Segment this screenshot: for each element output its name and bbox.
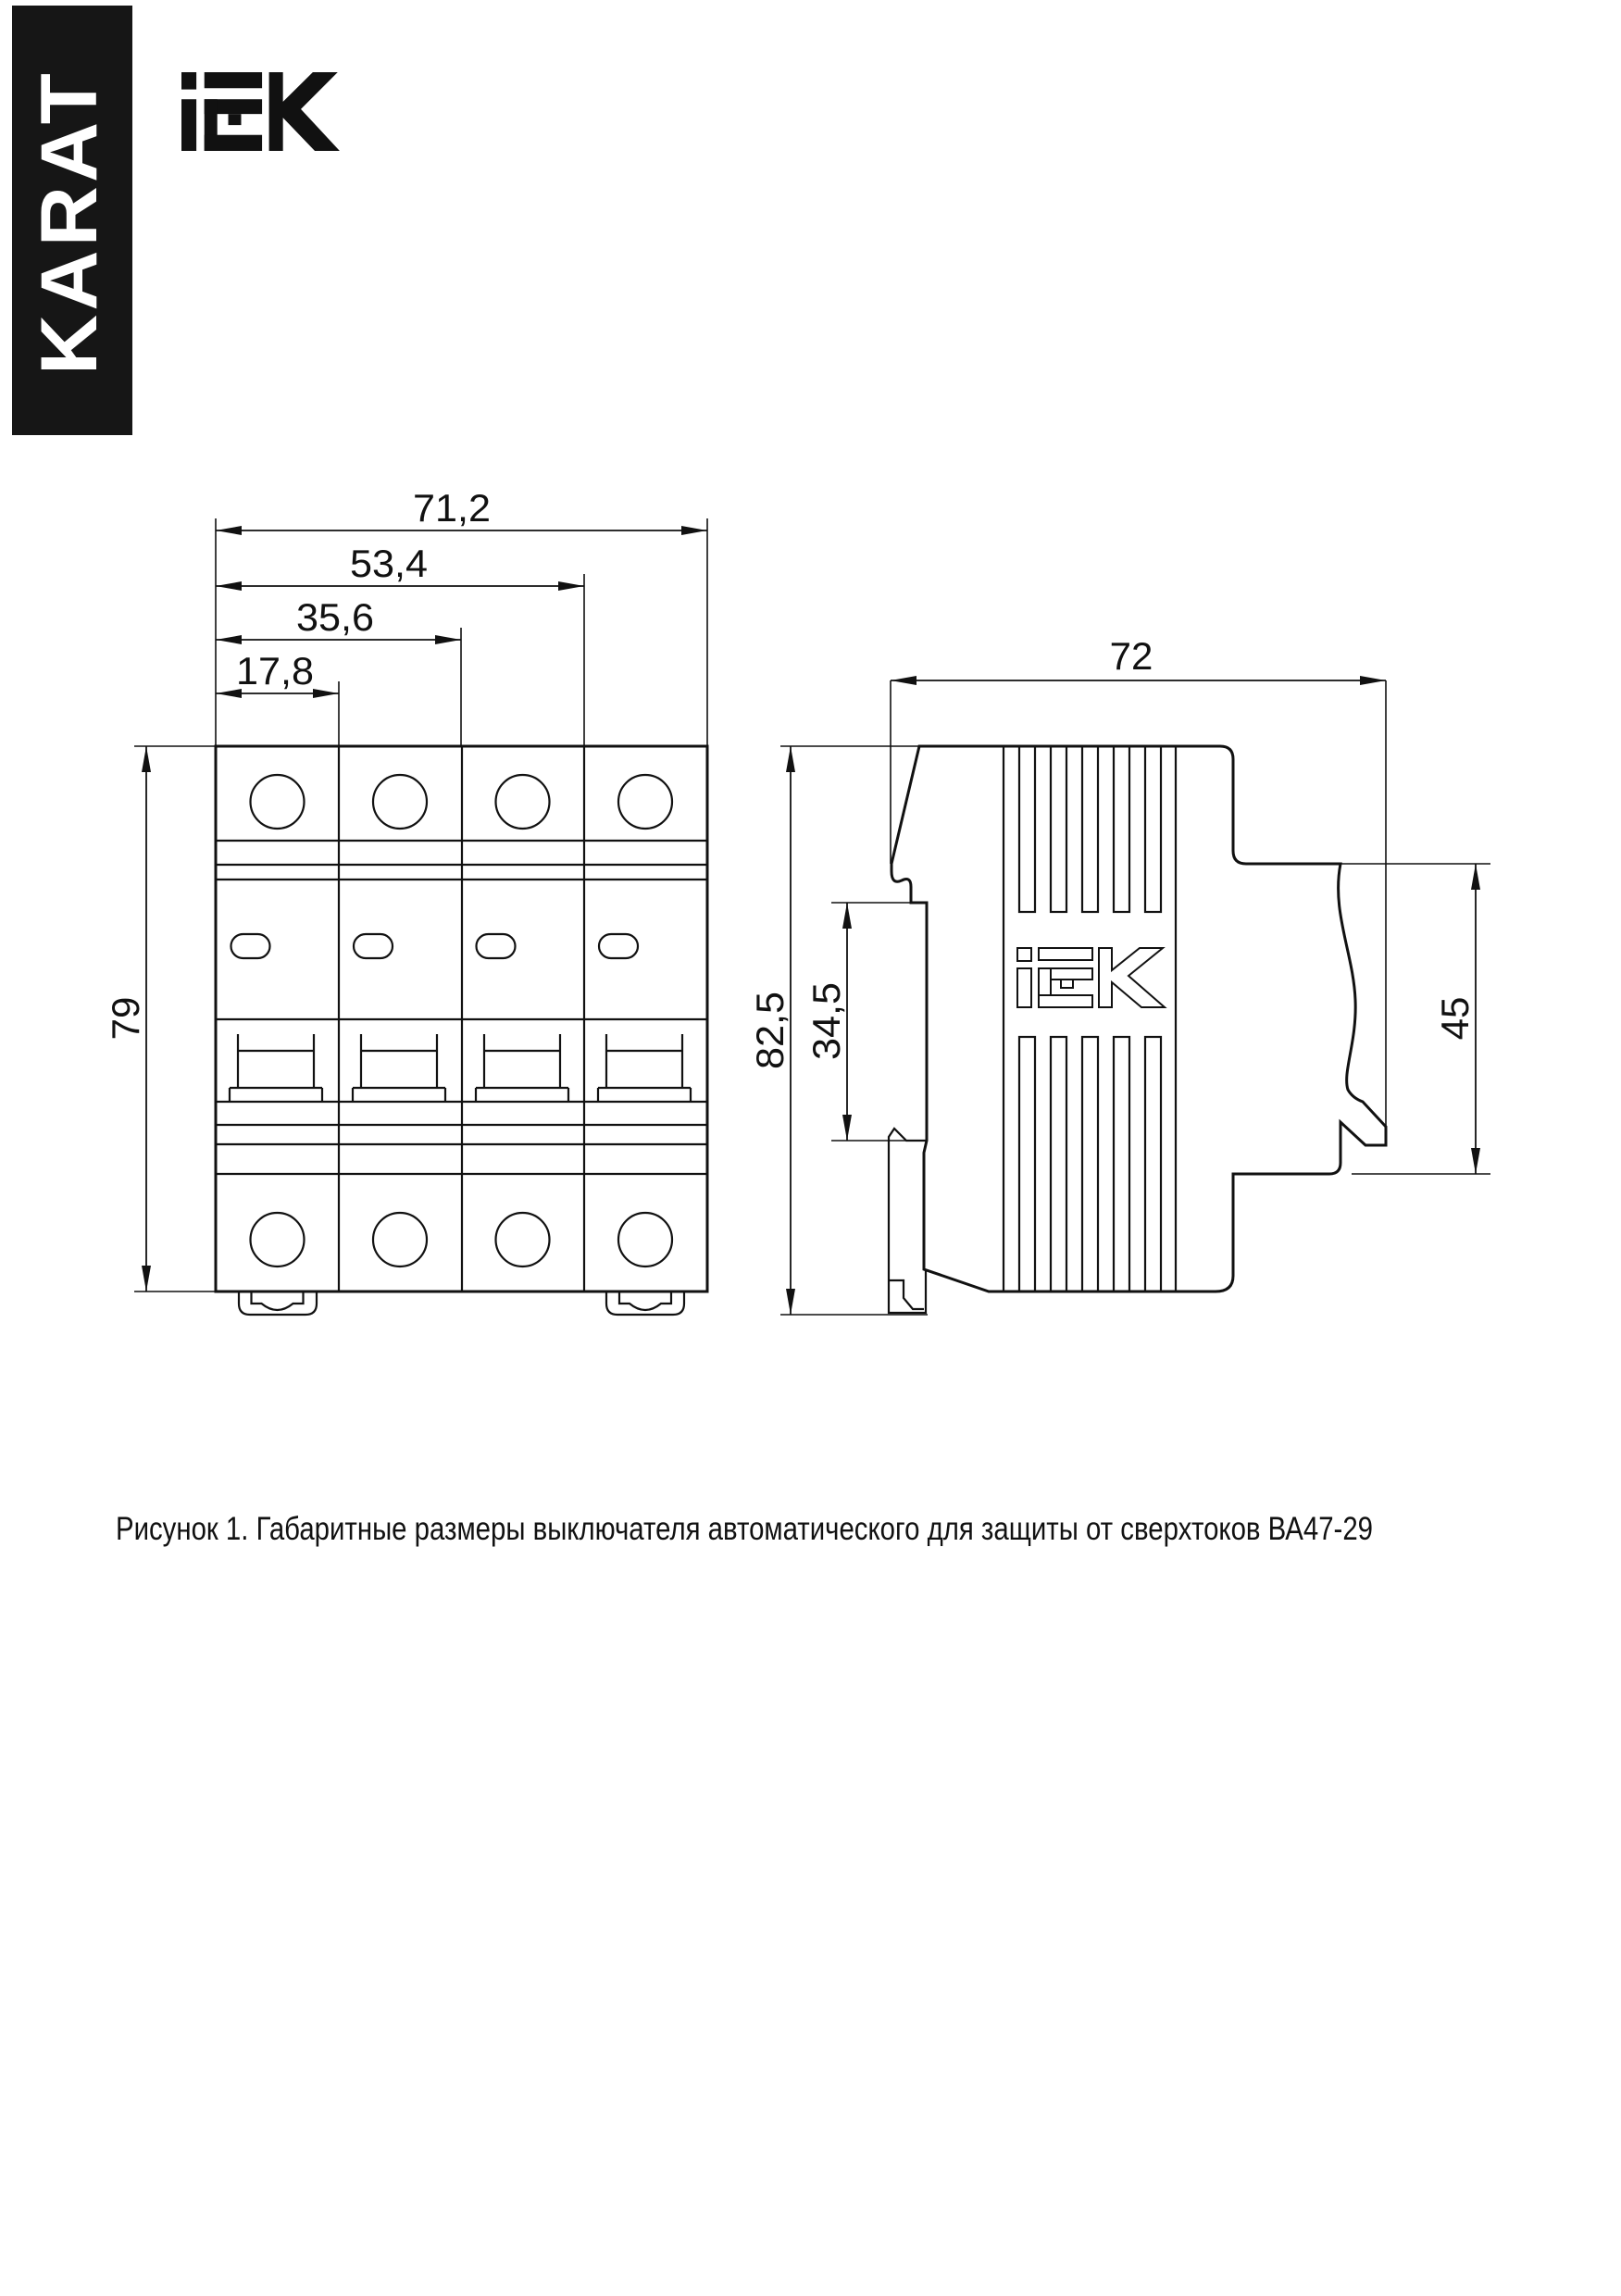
iek-logo-i-dot [1017,948,1031,961]
front-din-clips [239,1291,684,1315]
terminal-screw [496,775,550,829]
marking-window [599,934,638,958]
iek-logo-e-top [205,72,262,88]
terminal-screw [496,1213,550,1267]
front-toggle-handles [230,1034,691,1102]
vent-slot [1019,1037,1035,1291]
side-din-latch [889,1129,927,1313]
vent-slot [1114,1037,1129,1291]
karat-banner: KARAT [12,6,132,435]
front-dimension-arrows [142,526,707,1291]
iek-logo-k [269,72,340,151]
dim-label-width-3pole: 53,4 [350,542,428,585]
side-panel-edges [1004,746,1176,1291]
dim-label-front-panel: 45 [1433,997,1477,1041]
dim-label-depth: 72 [1110,634,1153,678]
din-clip-detail [252,1291,304,1310]
vent-slot [1145,746,1161,912]
dim-label-front-height: 79 [104,997,147,1041]
iek-logo-k [1099,948,1165,1007]
terminal-screw [618,1213,672,1267]
toggle-handle [476,1034,568,1102]
terminal-screw [373,775,427,829]
side-lower-vent-slots [1019,1037,1161,1291]
side-body-outline [892,746,1386,1291]
karat-banner-label: KARAT [25,69,114,375]
iek-logo-e-tab [1061,980,1073,988]
marking-window [354,934,393,958]
figure-caption: Рисунок 1. Габаритные размеры выключател… [116,1511,1373,1547]
dim-label-width-2pole: 35,6 [296,595,374,639]
toggle-handle [353,1034,445,1102]
side-view [889,746,1386,1313]
iek-logo-e-top [1039,948,1092,960]
iek-logo-e-tab [229,114,242,125]
dim-label-width-total: 71,2 [413,486,491,530]
dim-label-din-slot: 34,5 [804,982,848,1060]
vent-slot [1051,1037,1066,1291]
iek-logo-e-bottom [1039,995,1092,1007]
technical-drawing: KARAT [0,0,1621,2296]
dim-label-width-1pole: 17,8 [236,649,314,693]
marking-window [231,934,270,958]
document-page: KARAT [0,0,1621,2296]
iek-logo-i-bar [181,99,196,151]
iek-logo [181,72,340,151]
front-view-dimensions: 71,2 53,4 35,6 17,8 79 [104,486,707,1291]
vent-slot [1082,746,1098,912]
vent-slot [1051,746,1066,912]
front-marking-windows [231,934,639,958]
front-extension-lines [134,518,707,1291]
vent-slot [1145,1037,1161,1291]
side-iek-logo-embossed [1017,948,1165,1007]
terminal-screw [618,775,672,829]
vent-slot [1114,746,1129,912]
toggle-handle [230,1034,322,1102]
iek-logo-e-bottom [205,135,262,151]
side-din-latch-notch [889,1280,924,1309]
iek-logo-i-dot [181,72,196,90]
terminal-screw [373,1213,427,1267]
din-clip-detail [619,1291,671,1310]
terminal-screw [251,775,305,829]
toggle-handle [598,1034,691,1102]
marking-window [477,934,516,958]
terminal-screw [251,1213,305,1267]
dim-label-height-total: 82,5 [748,992,792,1069]
vent-slot [1082,1037,1098,1291]
vent-slot [1019,746,1035,912]
iek-logo-i-bar [1017,968,1031,1007]
side-upper-vent-slots [1019,746,1161,912]
din-clip [606,1291,684,1315]
front-view [216,746,707,1315]
